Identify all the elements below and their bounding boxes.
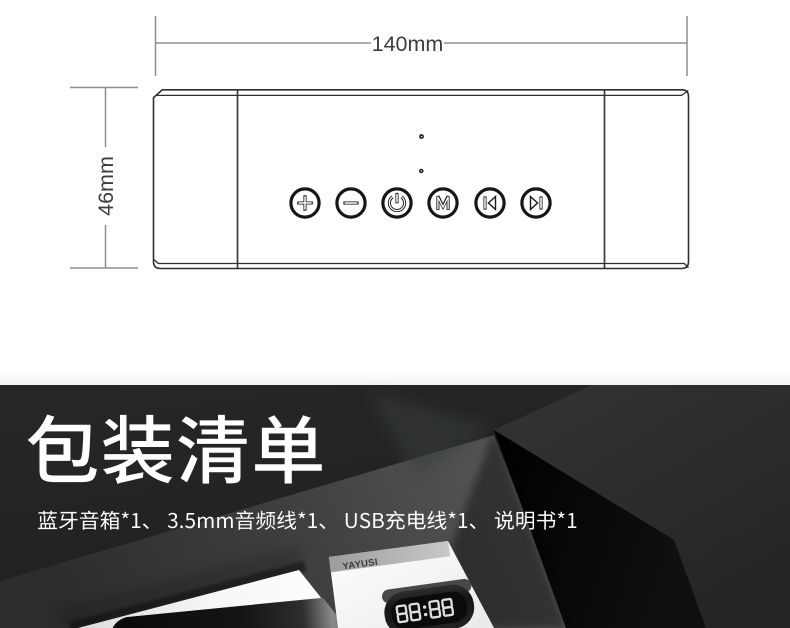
- svg-text:140mm: 140mm: [372, 32, 444, 56]
- svg-text:46mm: 46mm: [94, 156, 118, 216]
